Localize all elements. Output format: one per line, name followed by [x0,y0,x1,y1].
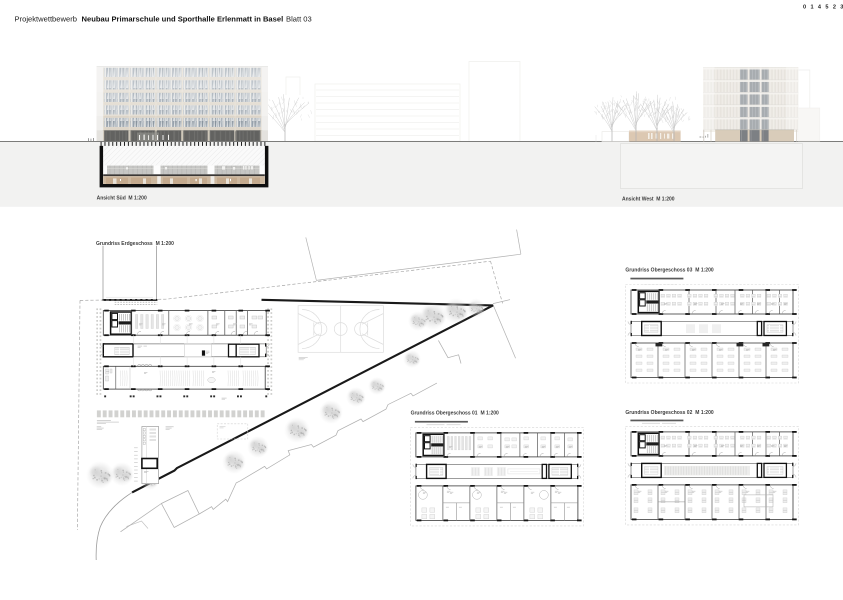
svg-text:M 1:200: M 1:200 [656,196,675,202]
svg-text:Ansicht West: Ansicht West [622,196,654,202]
svg-text:014523: 014523 [803,5,843,11]
svg-text:M 1:200: M 1:200 [156,241,175,247]
svg-text:Blatt 03: Blatt 03 [286,15,312,24]
svg-text:Ansicht Süd: Ansicht Süd [97,196,126,202]
svg-text:Grundriss Obergeschoss 02: Grundriss Obergeschoss 02 [625,410,692,416]
svg-text:M 1:200: M 1:200 [695,268,714,274]
svg-text:Grundriss Erdgeschoss: Grundriss Erdgeschoss [96,241,153,247]
svg-text:Grundriss Obergeschoss 03: Grundriss Obergeschoss 03 [625,268,692,274]
svg-text:Neubau Primarschule und Sporth: Neubau Primarschule und Sporthalle Erlen… [82,15,284,24]
svg-text:M 1:200: M 1:200 [481,411,500,417]
svg-text:M 1:200: M 1:200 [128,196,147,202]
svg-text:M 1:200: M 1:200 [695,410,714,416]
svg-text:Projektwettbewerb: Projektwettbewerb [15,15,77,24]
svg-text:Grundriss Obergeschoss 01: Grundriss Obergeschoss 01 [411,411,478,417]
